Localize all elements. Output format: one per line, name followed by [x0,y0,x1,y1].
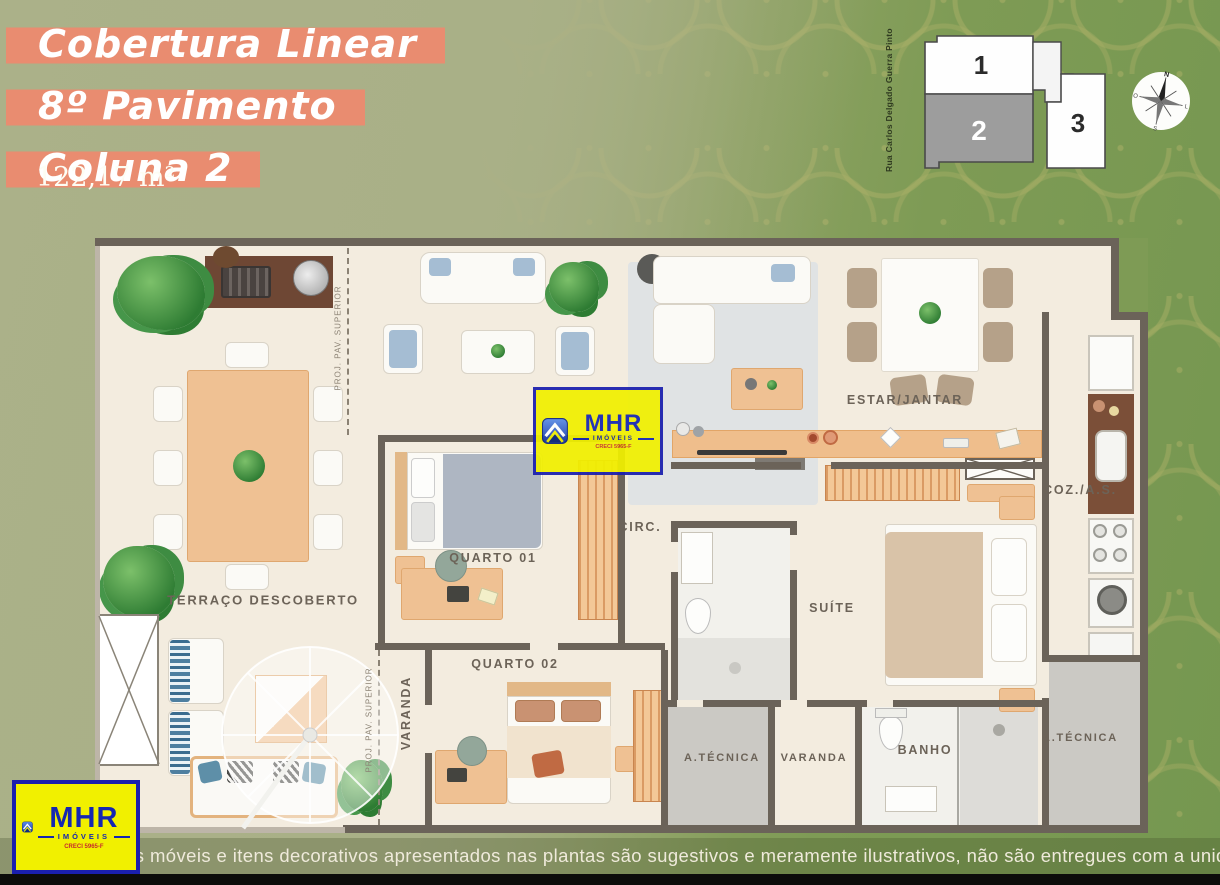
mhr-house-icon [542,411,568,451]
room-label-estar-jantar: ESTAR/JANTAR [847,393,963,407]
mhr-logo: MHR IMÓVEIS CRECI 5965-F [12,780,140,874]
room-label-atecnica-left: A.TÉCNICA [684,752,760,764]
disclaimer-text: Os móveis e itens decorativos apresentad… [120,845,1212,867]
title-line-2: 8º Pavimento [6,82,365,134]
projection-label: PROJ. PAV. SUPERIOR [334,285,343,390]
room-label-banho: BANHO [898,743,953,757]
mhr-subtitle: IMÓVEIS [593,436,634,443]
flyer: Cobertura Linear 8º Pavimento Coluna 2 1… [0,0,1220,885]
compass-icon: N L S O [1130,70,1192,132]
mhr-watermark: MHR IMÓVEIS CRECI 5965-F [533,387,663,475]
area-label: 122,17 m² [36,162,175,193]
room-label-varanda-bottom: VARANDA [781,752,848,764]
unit-3-number: 3 [1071,108,1085,138]
bottom-black-strip [0,874,1220,885]
room-label-circ: CIRC. [618,520,661,534]
projection-label: PROJ. PAV. SUPERIOR [365,667,374,772]
mhr-creci: CRECI 5965-F [595,445,631,451]
street-label: Rua Carlos Delgado Guerra Pinto [884,26,894,172]
floor-plan: TERRAÇO DESCOBERTO QUARTO 01 QUARTO 02 V… [95,238,1148,833]
room-label-varanda-left: VARANDA [399,676,413,750]
mhr-house-icon [22,804,33,850]
plan-linework [95,238,1148,833]
title-line-1: Cobertura Linear [6,20,445,72]
unit-2-number: 2 [971,115,987,146]
compass-s: S [1152,126,1157,132]
mhr-brand: MHR [49,804,118,833]
room-label-atecnica-right: A.TÉCNICA [1042,732,1118,744]
key-plan: 1 2 3 [915,28,1115,176]
mhr-subtitle: IMÓVEIS [58,833,110,841]
mhr-brand: MHR [585,412,643,436]
room-label-coz-as: COZ./A.S. [1043,483,1117,497]
room-label-quarto02: QUARTO 02 [471,657,559,671]
room-label-suite: SUÍTE [809,601,855,615]
room-label-quarto01: QUARTO 01 [449,551,537,565]
mhr-creci: CRECI 5965-F [64,844,103,850]
unit-1-number: 1 [974,50,988,80]
room-label-terraco: TERRAÇO DESCOBERTO [167,593,359,608]
